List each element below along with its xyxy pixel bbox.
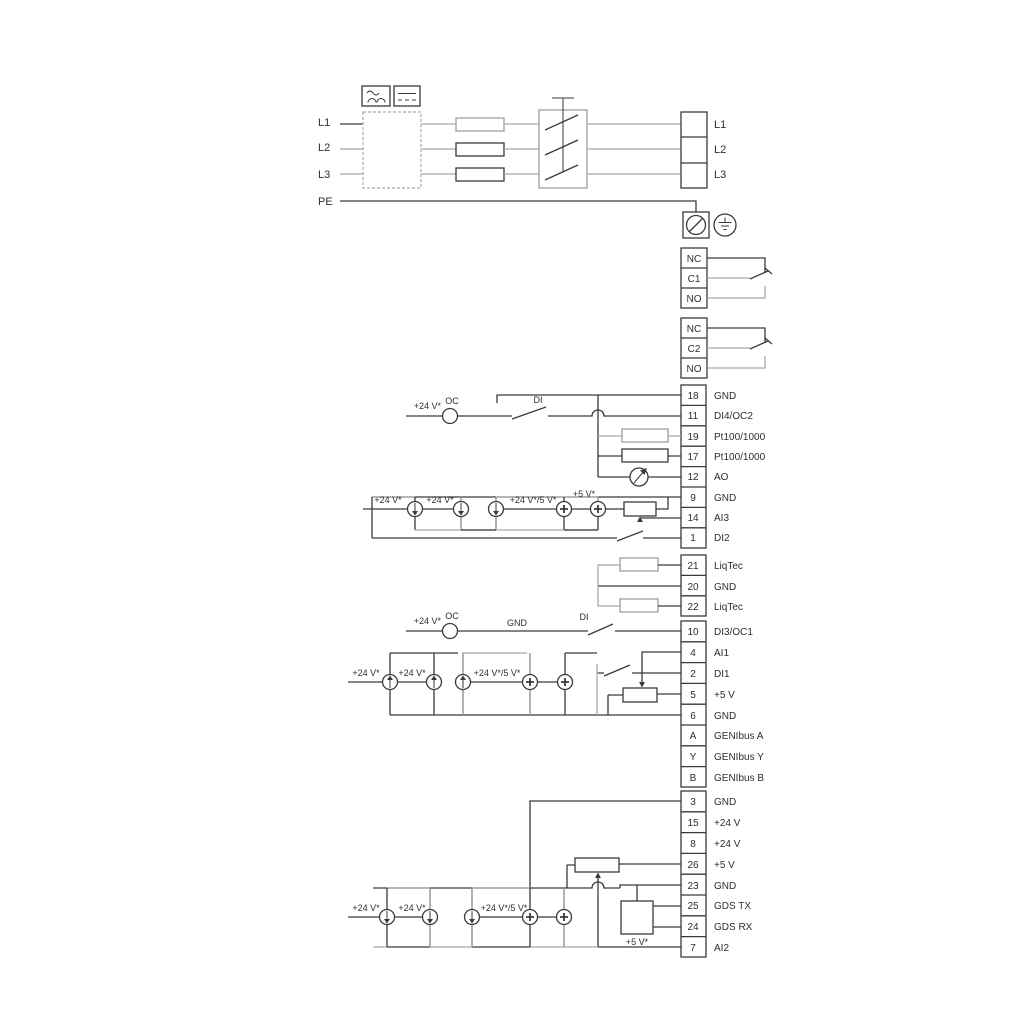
relay2-nc: NC [687,324,701,335]
pt100-17-resistor-icon [622,449,668,462]
terminal-19: 19 [687,432,699,443]
terminal-14: 14 [687,513,699,524]
terminal-23: 23 [687,881,699,892]
power-terminal-block: L1 L2 L3 [681,112,726,188]
terminal-1-label: DI2 [714,533,730,544]
wires-gds [653,906,681,927]
terminal-18: 18 [687,391,699,402]
wire-pot3-left [567,865,575,888]
liqtec-sensor-22-icon [620,599,658,612]
relay1-c1: C1 [688,274,701,285]
terminal-5: 5 [690,690,696,701]
terminal-a: A [690,731,697,742]
label-row1-24v5v: +24 V*/5 V* [510,495,557,505]
terminal-2-label: DI1 [714,669,730,680]
terminal-21: 21 [687,561,699,572]
terminal-4: 4 [690,648,696,659]
terminal-b: B [690,773,697,784]
terminal-14-label: AI3 [714,513,729,524]
relay2-block: NC C2 NO [681,318,772,378]
label-oc2: OC [445,611,459,621]
earth-ground-icon [714,214,736,236]
terminal-22: 22 [687,602,699,613]
terminal-20-label: GND [714,582,736,593]
liqtec-sensor-21-icon [620,558,658,571]
fuse-l3-icon [456,168,504,181]
wire-gnd23-rail [373,882,681,888]
label-row2-24v5v: +24 V*/5 V* [474,668,521,678]
fuse-l2-icon [456,143,504,156]
label-row1-5v: +5 V* [573,489,596,499]
wiring-diagram-page: L1 L2 L3 PE [0,0,1024,1024]
power-out-l2: L2 [714,144,726,156]
wire-pe [340,201,696,212]
terminal-25-label: GDS TX [714,901,751,912]
relay2-contact-icon [707,328,772,368]
label-row1-24v-a: +24 V* [374,495,402,505]
terminal-12: 12 [687,472,699,483]
power-section: L1 L2 L3 PE [318,86,736,238]
terminal-b-label: GENIbus B [714,773,764,784]
label-di1: DI [534,395,543,405]
terminal-18-label: GND [714,391,736,402]
oc2-circle-icon [443,624,458,639]
terminal-22-label: LiqTec [714,602,743,613]
fuse-l1-icon [456,118,504,131]
terminal-25: 25 [687,901,699,912]
wires-rcd-to-fuses [421,124,456,174]
relay1-nc: NC [687,254,701,265]
label-24v-oc1: +24 V* [414,401,442,411]
power-label-pe: PE [318,196,333,208]
relay1-contact-icon [707,258,772,298]
wire-pot2-left [608,695,623,715]
label-di2: DI [580,612,589,622]
terminal-9: 9 [690,493,696,504]
terminal-15: 15 [687,818,699,829]
relay2-no: NO [687,364,702,375]
terminal-11: 11 [688,411,699,422]
label-row3-24v5v: +24 V*/5 V* [481,903,528,913]
terminal-a-label: GENIbus A [714,731,764,742]
sensor-supply-options-row2: +24 V* +24 V* +24 V*/5 V* [348,653,597,715]
wire-di1 [597,665,681,676]
terminal-26-label: +5 V [714,860,735,871]
analog-output-meter-icon [630,468,648,486]
terminal-9-label: GND [714,493,736,504]
relay2-c2: C2 [688,344,701,355]
power-label-l3: L3 [318,169,330,181]
wire-di2 [372,531,681,541]
terminal-7: 7 [690,943,696,954]
terminal-6: 6 [690,711,696,722]
label-gnd-inline: GND [507,618,528,628]
io-group-1: 18 11 19 17 12 9 14 1 GND DI4/OC2 Pt100/… [372,385,766,548]
wire-di3 [458,624,681,635]
terminal-6-label: GND [714,711,736,722]
pot2-wiper-arrow-icon [639,682,645,688]
io-group-2: 21 20 22 LiqTec GND LiqTec [598,555,743,616]
rcd-type-b-icon [394,86,420,106]
wires-fuses-to-switch [504,124,539,174]
terminal-8-label: +24 V [714,839,741,850]
gds-sensor-box-icon [621,901,653,934]
label-row2-24v-a: +24 V* [352,668,380,678]
label-gds-5v: +5 V* [626,937,649,947]
terminal-7-label: AI2 [714,943,729,954]
oc1-circle-icon [443,409,458,424]
terminal-26: 26 [687,860,699,871]
terminal-3-label: GND [714,797,736,808]
wire-pot1-right [656,497,668,509]
terminal-12-label: AO [714,472,729,483]
terminal-5-label: +5 V [714,690,735,701]
terminal-11-label: DI4/OC2 [714,411,753,422]
label-row3-24v-b: +24 V* [398,903,426,913]
terminal-20: 20 [687,582,699,593]
terminal-y: Y [690,752,697,763]
terminal-24: 24 [687,922,699,933]
terminal-2: 2 [690,669,696,680]
sensor-supply-options-row1: +24 V* +24 V* +24 V*/5 V* +5 V* [363,489,606,530]
terminal-y-label: GENIbus Y [714,752,764,763]
terminal-21-label: LiqTec [714,561,743,572]
label-24v-oc2: +24 V* [414,616,442,626]
terminal-8: 8 [690,839,696,850]
ai2-potentiometer-icon [575,858,619,872]
terminal-3: 3 [690,797,696,808]
terminal-10-label: DI3/OC1 [714,627,753,638]
row2-legs-gray [463,653,530,715]
terminal-17: 17 [687,452,699,463]
terminal-10: 10 [687,627,699,638]
terminal-17-label: Pt100/1000 [714,452,766,463]
relay1-block: NC C1 NO [681,248,772,308]
wiring-diagram: L1 L2 L3 PE [0,0,1024,1024]
row2-legs [390,653,565,715]
ai3-potentiometer-icon [624,502,656,516]
terminal-24-label: GDS RX [714,922,753,933]
terminal-1: 1 [690,533,696,544]
wire-gnd3 [530,801,681,888]
pt100-19-resistor-icon [622,429,668,442]
terminal-4-label: AI1 [714,648,729,659]
pe-terminal-icon [683,212,709,238]
label-oc1: OC [445,396,459,406]
power-out-l1: L1 [714,119,726,131]
label-row3-24v-a: +24 V* [352,903,380,913]
terminal-15-label: +24 V [714,818,741,829]
power-label-l2: L2 [318,142,330,154]
label-row2-24v-b: +24 V* [398,668,426,678]
io-group-3: 10 4 2 5 6 A Y B DI3/OC1 AI1 DI1 +5 V GN… [390,611,764,787]
wire-ai1 [642,652,681,683]
pot3-wiper-arrow-icon [595,873,601,879]
wire-di4 [458,407,681,419]
main-switch-icon [539,98,587,188]
relay1-no: NO [687,294,702,305]
power-label-l1: L1 [318,117,330,129]
terminal-19-label: Pt100/1000 [714,432,766,443]
wires-switch-to-terminals [587,124,681,174]
ai1-potentiometer-icon [623,688,657,702]
rcd-type-a-icon [362,86,390,106]
wire-gnd18 [497,395,681,403]
terminal-23-label: GND [714,881,736,892]
power-out-l3: L3 [714,169,726,181]
label-row1-24v-b: +24 V* [426,495,454,505]
sensor-supply-options-row3: +24 V* +24 V* +24 V*/5 V* [348,888,598,947]
rcd-dashed-box [363,112,421,188]
pot1-wiper-arrow-icon [637,517,643,523]
